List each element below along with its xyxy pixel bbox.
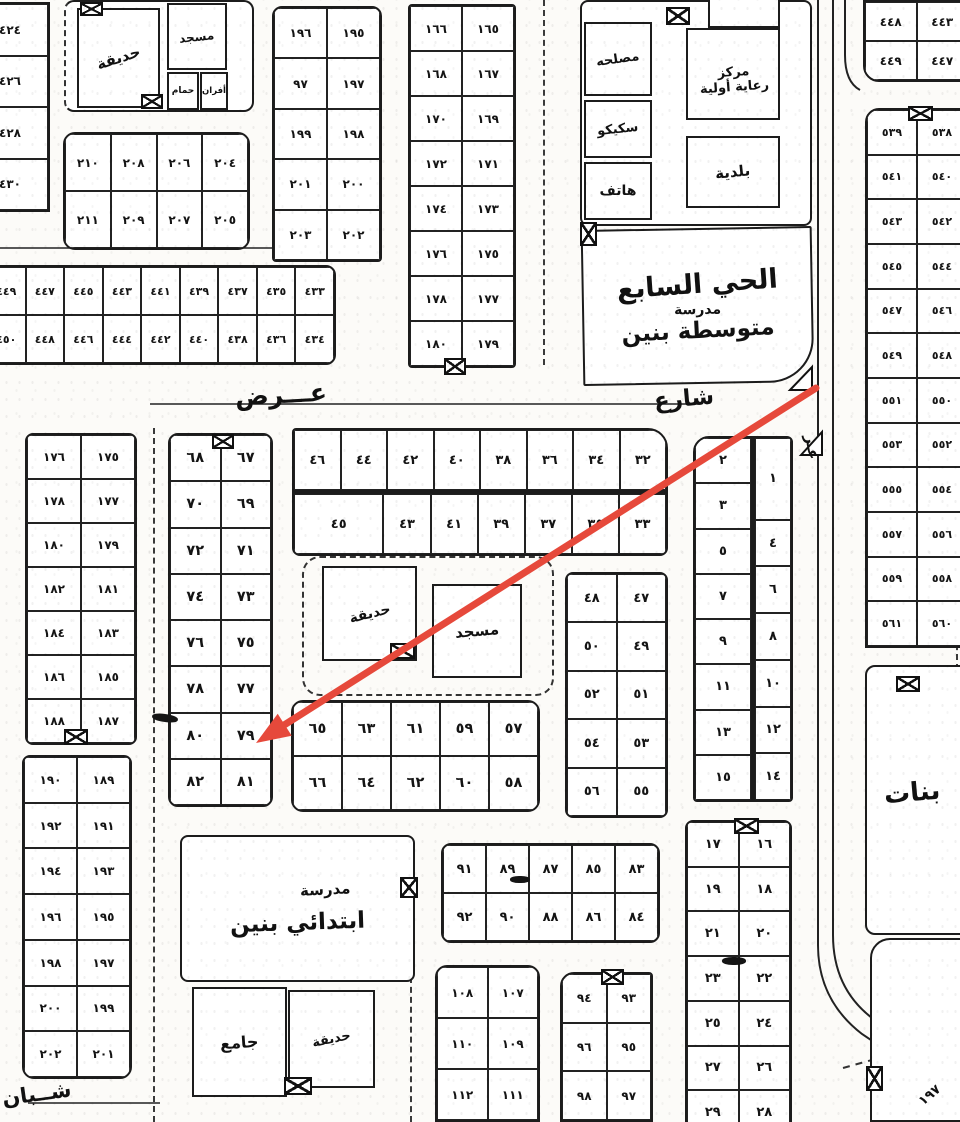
plot-cell: ٧٦ [170,620,221,666]
plot-cell: ١٨٠ [27,523,81,567]
plot-cell: ٤٤١ [141,267,180,315]
nw-ovens-label: أفران [202,86,226,96]
plot-cell: ١٨٤ [27,611,81,655]
center-mosque: مسجد [432,584,522,678]
plot-cell: ١٩٢ [24,803,77,849]
plot-cell: ٢١١ [65,191,111,248]
plot-cell: ٥٦٠ [917,601,960,646]
plot-cell: ٥٤٢ [917,199,960,244]
street-name-southwest: شــبان [1,1077,73,1110]
plot-cell: ٥٤٠ [917,155,960,200]
plot-cell: ١٨٢ [27,567,81,611]
plot-cell: ٢ [695,438,751,483]
plot-cell: ٥٥ [617,768,667,816]
plot-cell: ٤٤٧ [26,267,65,315]
plot-cell: ٢٠٠ [24,986,77,1032]
plot-cell: ٥٩ [440,702,489,756]
plot-cell: ١٣ [695,710,751,755]
nw-bath-label: حمام [172,86,195,96]
plot-cell: ١٦٧ [462,51,514,96]
plot-cell: ٥٥٥ [867,467,917,512]
plot-cell: ٧٣ [221,574,272,620]
south-mosque-label: جامع [220,1031,260,1053]
plot-cell: ٤٦ [294,430,341,490]
plot-cell: ٨ [755,613,791,660]
plot-cell: ٩٤ [562,974,607,1023]
plot-cell: ١٨٦ [27,655,81,699]
plot-cell: ٥٤ [567,719,617,767]
plot-cell: ٥٤٧ [867,289,917,334]
plot-cell: ١٧٨ [27,479,81,523]
marker-x-icon [284,1077,312,1095]
plot-cell: ٥٥٧ [867,512,917,557]
plot-cell: ١٨٩ [77,757,130,803]
municipality-label: بلدية [715,161,752,183]
plot-cell: ٨١ [221,759,272,805]
plot-cell: ٢٧ [687,1046,739,1091]
plot-cell: ٢١٠ [65,134,111,191]
plot-cell: ٩٠ [486,893,529,941]
plot-cell: ١٥ [695,755,751,800]
plot-block-165-180: ١٦٦١٦٥١٦٨١٦٧١٧٠١٦٩١٧٢١٧١١٧٤١٧٣١٧٦١٧٥١٧٨١… [408,4,516,368]
plot-cell: ٤٤٥ [64,267,103,315]
plot-cell: ١٨٧ [81,699,135,743]
plot-cell: ٤٠ [434,430,481,490]
plot-block-107-112: ١٠٨١٠٧١١٠١٠٩١١٢١١١ [435,965,540,1122]
plot-cell: ٤٤ [341,430,388,490]
phone-label: هاتف [600,183,637,199]
plot-block-424-430: ٤٢٤٤٢٦٤٢٨٤٣٠ [0,2,50,212]
plot-cell: ١٦٥ [462,6,514,51]
plot-cell: ٤٤٤ [103,315,142,363]
plot-cell: ١٦٩ [462,96,514,141]
plot-cell: ٥٥٣ [867,423,917,468]
plot-cell: ٥٥٠ [917,378,960,423]
plot-cell: ١٩٩ [77,986,130,1032]
plot-cell: ١٩٦ [274,8,327,58]
plot-cell: ٩ [695,619,751,664]
nw-garden-label: حديقة [94,42,142,73]
nw-mosque-label: مسجد [179,28,216,46]
plot-cell: ٢٠٨ [111,134,157,191]
plot-cell: ٤٣٤ [295,315,334,363]
plot-cell: ٥٥٩ [867,557,917,602]
center-mosque-label: مسجد [454,620,499,642]
plot-cell: ٥٤٣ [867,199,917,244]
plot-block-47-56: ٤٨٤٧٥٠٤٩٥٢٥١٥٤٥٣٥٦٥٥ [565,572,668,818]
elementary-school-label-1: مدرسة [300,879,351,900]
plot-cell: ٤٣٣ [295,267,334,315]
plot-cell: ١٠ [755,660,791,707]
plot-cell: ٥٤٥ [867,244,917,289]
plot-block-odd-2-15: ٢٣٥٧٩١١١٣١٥ [693,436,753,802]
plot-cell: ٤٤٠ [180,315,219,363]
plot-cell: ١٦٨ [410,51,462,96]
plot-block-93-98: ٩٤٩٣٩٦٩٥٩٨٩٧ [560,972,653,1122]
plot-cell: ٤٨ [567,574,617,622]
plot-cell: ٦٩ [221,481,272,527]
plot-cell: ٧٩ [221,713,272,759]
plot-cell: ٤٣٠ [0,159,48,211]
services-top-box [708,0,780,28]
plot-block-16-29: ١٧١٦١٩١٨٢١٢٠٢٣٢٢٢٥٢٤٢٧٢٦٢٩٢٨ [685,820,792,1122]
plot-cell: ١٧٧ [462,276,514,321]
plot-cell: ٢٠٦ [157,134,203,191]
plot-cell: ٢٢ [739,956,791,1001]
south-mosque: جامع [192,987,287,1097]
plot-cell: ١٧٥ [81,435,135,479]
plot-block-204-211: ٢١٠٢٠٨٢٠٦٢٠٤٢١١٢٠٩٢٠٧٢٠٥ [63,132,250,250]
plot-block-even-1-14: ١٤٦٨١٠١٢١٤ [753,436,793,802]
plot-cell: ١٧ [687,822,739,867]
marker-x-icon [141,94,163,109]
plot-cell: ٨٣ [615,845,658,893]
plot-cell: ١٩ [687,867,739,912]
plot-cell: ٣٥ [572,494,619,554]
care-center-outline [686,28,780,120]
plot-cell: ٧٤ [170,574,221,620]
plot-cell: ٥٤٩ [867,333,917,378]
plot-cell: ١٨ [739,867,791,912]
plot-cell: ٣ [695,483,751,528]
plot-cell: ١٩٣ [77,848,130,894]
plot-cell: ٥٤٦ [917,289,960,334]
marker-x-icon [734,818,759,834]
plot-block-538-561: ٥٣٩٥٣٨٥٤١٥٤٠٥٤٣٥٤٢٥٤٥٥٤٤٥٤٧٥٤٦٥٤٩٥٤٨٥٥١٥… [865,108,960,648]
plot-block-189-202: ١٩٠١٨٩١٩٢١٩١١٩٤١٩٣١٩٦١٩٥١٩٨١٩٧٢٠٠١٩٩٢٠٢٢… [22,755,132,1079]
plot-cell: ١٨٣ [81,611,135,655]
plot-cell: ١٩١ [77,803,130,849]
plot-cell: ٣٣ [619,494,666,554]
plot-cell: ٤٣٩ [180,267,219,315]
nw-mosque: مسجد [167,3,227,70]
plot-cell: ٥٠ [567,622,617,670]
plot-cell: ١٩٧ [77,940,130,986]
elementary-school-block: مدرسة ابتدائي بنين [180,835,415,982]
plot-block-433-450: ٤٤٩٤٤٧٤٤٥٤٤٣٤٤١٤٣٩٤٣٧٤٣٥٤٣٣٤٥٠٤٤٨٤٤٦٤٤٤٤… [0,265,336,365]
plot-cell: ٤٧ [617,574,667,622]
street-name-main: عـــرض [221,377,340,412]
electric-label: سكيكو [597,119,640,138]
plot-cell: ١٧٨ [410,276,462,321]
nw-ovens: أفران [200,72,228,110]
middle-school-label-1: مدرسة [674,301,721,318]
plot-cell: ٥٦ [567,768,617,816]
plot-cell: ٢٤ [739,1001,791,1046]
plot-cell: ٣٤ [573,430,620,490]
marker-x-icon [80,2,103,16]
dashed-alley [543,0,545,365]
plot-cell: ٩٨ [562,1071,607,1120]
plot-cell: ٤٣ [383,494,430,554]
phone-box: هاتف [584,162,652,220]
plot-block-175-188: ١٧٦١٧٥١٧٨١٧٧١٨٠١٧٩١٨٢١٨١١٨٤١٨٣١٨٦١٨٥١٨٨١… [25,433,137,745]
plot-cell: ٥٥٢ [917,423,960,468]
plot-cell: ٤٢ [387,430,434,490]
plot-cell: ٧٠ [170,481,221,527]
plot-cell: ١٩٧ [327,58,380,108]
plot-cell: ٨٦ [572,893,615,941]
plot-cell: ٢٠٣ [274,210,327,260]
plot-block-195-203: ١٩٦١٩٥٩٧١٩٧١٩٩١٩٨٢٠١٢٠٠٢٠٣٢٠٢ [272,6,382,262]
plot-cell: ٦٠ [440,756,489,810]
plot-cell: ١١١ [488,1069,539,1120]
plot-cell: ٧١ [221,528,272,574]
plot-cell: ٥٤١ [867,155,917,200]
plot-cell: ٤٩ [617,622,667,670]
plot-cell: ٥١ [617,671,667,719]
plot-cell: ١٩٤ [24,848,77,894]
plot-cell: ١٨٥ [81,655,135,699]
plot-cell: ٢٨ [739,1090,791,1122]
plot-cell: ١٩٥ [77,894,130,940]
plot-cell: ١٧٠ [410,96,462,141]
plot-cell: ٦١ [391,702,440,756]
plot-cell: ٧٥ [221,620,272,666]
plot-cell: ١٧٣ [462,186,514,231]
plot-cell: ٥٥٦ [917,512,960,557]
plot-cell: ٦ [755,566,791,613]
plot-cell: ٣٦ [527,430,574,490]
plot-cell: ١٠٨ [437,967,488,1018]
plot-cell: ٤١ [431,494,478,554]
plot-cell: ٩٥ [607,1023,652,1072]
plot-cell: ٤٣٥ [257,267,296,315]
plot-cell: ٦٦ [293,756,342,810]
plot-cell: ٤٣٦ [257,315,296,363]
plot-cell: ٢٠ [739,911,791,956]
plot-cell: ٥٤٨ [917,333,960,378]
ink-smudge [722,957,746,965]
plot-cell: ٥٨ [489,756,538,810]
plot-cell: ٢٩ [687,1090,739,1122]
marker-x-icon [444,358,466,375]
nw-bath: حمام [167,72,199,110]
plot-cell: ٦٥ [293,702,342,756]
plot-cell: ٦٤ [342,756,391,810]
plot-block-83-92: ٩١٨٩٨٧٨٥٨٣٩٢٩٠٨٨٨٦٨٤ [441,843,660,943]
plot-cell: ٨٥ [572,845,615,893]
plot-cell: ١٩٥ [327,8,380,58]
marker-x-icon [601,969,624,985]
marker-x-icon [866,1066,883,1091]
plot-cell: ١٨١ [81,567,135,611]
plot-cell: ١٩٨ [327,109,380,159]
plot-cell: ٧٧ [221,666,272,712]
street-word-label: شارع [627,381,741,417]
plot-cell: ٥٤٤ [917,244,960,289]
plot-cell: ٤٤٧ [917,41,960,80]
plot-cell: ٩١ [443,845,486,893]
plot-block-67-82: ٦٨٦٧٧٠٦٩٧٢٧١٧٤٧٣٧٦٧٥٧٨٧٧٨٠٧٩٨٢٨١ [168,433,273,807]
plot-cell: ١٧٩ [81,523,135,567]
plot-cell: ٤٤٦ [64,315,103,363]
plot-cell: ٤٥٠ [0,315,26,363]
plot-cell: ٥ [695,529,751,574]
office-label: مصلحه [595,49,640,70]
plot-cell: ١٠٩ [488,1018,539,1069]
elementary-school-label-2: ابتدائي بنين [230,907,366,938]
plot-cell: ٤٥ [294,494,383,554]
plot-cell: ١٦٦ [410,6,462,51]
plot-cell: ١١ [695,664,751,709]
plot-cell: ٥٥٤ [917,467,960,512]
plot-cell: ٤٤٨ [26,315,65,363]
municipality-box: بلدية [686,136,780,208]
plot-cell: ٢٠٠ [327,159,380,209]
office-box: مصلحه [584,22,652,96]
plot-cell: ١٧٦ [410,231,462,276]
marker-x-icon [64,729,88,745]
plot-cell: ٩٦ [562,1023,607,1072]
marker-x-icon [580,222,597,246]
plot-cell: ٣٧ [525,494,572,554]
plot-cell: ٥٦١ [867,601,917,646]
plot-cell: ٤٣٨ [218,315,257,363]
plot-cell: ٧٨ [170,666,221,712]
plot-block-32-46-upper: ٤٦٤٤٤٢٤٠٣٨٣٦٣٤٣٢ [292,428,668,492]
plot-cell: ١١٢ [437,1069,488,1120]
street-name-east-vertical: عـر [801,433,823,460]
south-garden: حديقة [288,990,375,1088]
plot-cell: ٤٤٣ [103,267,142,315]
plot-cell: ٦٣ [342,702,391,756]
southeast-block [870,938,960,1122]
plot-cell: ٥٣ [617,719,667,767]
south-garden-label: حديقة [311,1028,352,1051]
plot-cell: ١٤ [755,753,791,800]
plot-cell: ٢٠١ [274,159,327,209]
plot-cell: ٨٧ [529,845,572,893]
plot-cell: ٥٧ [489,702,538,756]
plot-cell: ٤٤٩ [0,267,26,315]
marker-x-icon [666,7,690,25]
plot-cell: ٩٧ [607,1071,652,1120]
plot-cell: ٢٦ [739,1046,791,1091]
middle-school-block: الحي السابع مدرسة متوسطة بنين [581,226,815,386]
electric-box: سكيكو [584,100,652,158]
plot-cell: ٨٢ [170,759,221,805]
plot-cell: ١٧٥ [462,231,514,276]
plot-cell: ١٧٦ [27,435,81,479]
plot-cell: ٣٨ [480,430,527,490]
marker-x-icon [908,106,933,121]
plot-block-33-45-lower: ٤٥٤٣٤١٣٩٣٧٣٥٣٣ [292,492,668,556]
plot-cell: ١٩٨ [24,940,77,986]
plot-cell: ١٩٠ [24,757,77,803]
plot-cell: ٢١ [687,911,739,956]
plot-cell: ٤ [755,520,791,567]
plot-cell: ٢٥ [687,1001,739,1046]
marker-x-icon [400,877,418,898]
dashed-alley [153,428,155,1122]
plot-cell: ٤٢٦ [0,56,48,108]
plot-cell: ٩٢ [443,893,486,941]
plot-cell: ٥٥١ [867,378,917,423]
plot-cell: ٨٨ [529,893,572,941]
plot-cell: ٢٠٧ [157,191,203,248]
plot-cell: ١٩٩ [274,109,327,159]
plot-cell: ١٧١ [462,141,514,186]
plot-cell: ٥٢ [567,671,617,719]
plot-cell: ١٢ [755,707,791,754]
ink-smudge [510,876,530,883]
plot-cell: ٢٠٢ [327,210,380,260]
plot-cell: ٤٢٨ [0,107,48,159]
plot-block-57-66: ٦٥٦٣٦١٥٩٥٧٦٦٦٤٦٢٦٠٥٨ [291,700,540,812]
plot-cell: ٥٥٨ [917,557,960,602]
cadastral-map: ٤٢٤٤٢٦٤٢٨٤٣٠ ٤٤٩٤٤٧٤٤٥٤٤٣٤٤١٤٣٩٤٣٧٤٣٥٤٣٣… [0,0,960,1122]
district-title: الحي السابع [616,263,779,305]
plot-cell: ١٧٩ [462,321,514,366]
plot-cell: ١٧٢ [410,141,462,186]
plot-cell: ٢٠٢ [24,1031,77,1077]
plot-cell: ٦٢ [391,756,440,810]
plot-cell: ٨٩ [486,845,529,893]
center-garden-label: حديقة [347,601,392,627]
plot-cell: ١٠٧ [488,967,539,1018]
plot-cell: ٣٩ [478,494,525,554]
plot-cell: ١٩٦ [24,894,77,940]
plot-cell: ٨٤ [615,893,658,941]
plot-cell: ٢٠٩ [111,191,157,248]
plot-cell: ٤٤٩ [865,41,917,80]
plot-cell: ٩٧ [274,58,327,108]
plot-cell: ٢٠٤ [202,134,248,191]
middle-school-label-2: متوسطة بنين [621,314,775,348]
marker-x-icon [212,434,234,449]
plot-cell: ١٧٧ [81,479,135,523]
plot-cell: ٤٣٧ [218,267,257,315]
marker-x-icon [896,676,920,692]
plot-cell: ٧ [695,574,751,619]
marker-x-icon [390,643,415,659]
nw-garden: حديقة [77,8,160,108]
plot-cell: ٤٤٢ [141,315,180,363]
plot-cell: ٢٠١ [77,1031,130,1077]
plot-cell: ٧٢ [170,528,221,574]
plot-cell: ٤٤٣ [917,2,960,41]
plot-cell: ١ [755,438,791,520]
plot-cell: ١١٠ [437,1018,488,1069]
plot-cell: ٣٢ [620,430,667,490]
plot-block-443-449: ٤٤٨٤٤٣٤٤٩٤٤٧ [863,0,960,82]
plot-cell: ٢٠٥ [202,191,248,248]
plot-cell: ٤٤٨ [865,2,917,41]
girls-school-label: بنات [883,776,942,811]
plot-cell: ٤٢٤ [0,4,48,56]
plot-cell: ١٧٤ [410,186,462,231]
